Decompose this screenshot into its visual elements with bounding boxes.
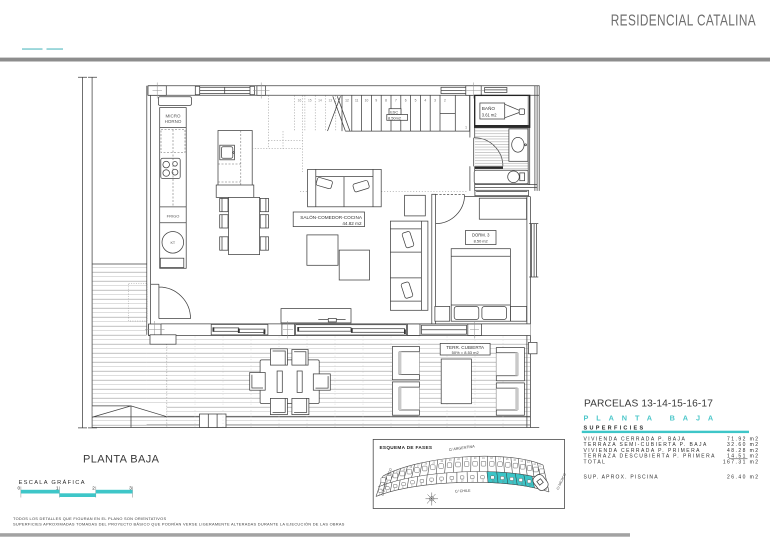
- svg-text:8.50 m2: 8.50 m2: [474, 239, 488, 244]
- svg-text:HORNO: HORNO: [165, 119, 182, 124]
- svg-text:6: 6: [405, 99, 407, 103]
- svg-text:BAÑO: BAÑO: [482, 105, 496, 111]
- svg-text:7: 7: [395, 99, 397, 103]
- svg-text:1: 1: [465, 126, 467, 130]
- svg-text:13: 13: [328, 99, 332, 103]
- svg-text:12: 12: [345, 99, 349, 103]
- svg-text:RESIDENCIAL CATALINA: RESIDENCIAL CATALINA: [611, 11, 756, 29]
- svg-text:3: 3: [129, 485, 132, 490]
- svg-text:SUPERFICIES APROXIMADAS TOMADA: SUPERFICIES APROXIMADAS TOMADAS DEL PROY…: [13, 522, 345, 527]
- svg-text:SALÓN-COMEDOR-COCINA: SALÓN-COMEDOR-COCINA: [300, 214, 363, 220]
- svg-text:15: 15: [308, 99, 312, 103]
- svg-text:MICRO: MICRO: [166, 113, 181, 118]
- svg-text:3: 3: [434, 99, 436, 103]
- svg-text:2: 2: [444, 99, 446, 103]
- svg-text:2: 2: [92, 485, 95, 490]
- svg-text:9: 9: [375, 99, 377, 103]
- svg-text:TOTAL: TOTAL: [584, 459, 607, 465]
- svg-text:16: 16: [298, 99, 302, 103]
- svg-text:FRIGO: FRIGO: [167, 213, 180, 218]
- svg-text:PLANTA BAJA: PLANTA BAJA: [83, 454, 160, 466]
- svg-text:SUPERFICIES: SUPERFICIES: [584, 425, 646, 431]
- svg-text:8: 8: [385, 99, 387, 103]
- svg-text:PARCELAS 13-14-15-16-17: PARCELAS 13-14-15-16-17: [584, 399, 713, 410]
- svg-text:PLANTA BAJA: PLANTA BAJA: [584, 414, 722, 423]
- svg-text:ESQUEMA DE FASES: ESQUEMA DE FASES: [380, 445, 433, 450]
- svg-text:10: 10: [365, 99, 369, 103]
- svg-text:ESCALA GRÁFICA: ESCALA GRÁFICA: [19, 479, 86, 486]
- svg-text:26.40 m2: 26.40 m2: [727, 475, 759, 481]
- svg-text:SUP. APROX. PISCINA: SUP. APROX. PISCINA: [584, 475, 659, 481]
- svg-text:3.61 m2: 3.61 m2: [482, 113, 498, 118]
- svg-text:167.31 m2: 167.31 m2: [723, 459, 760, 465]
- svg-text:4: 4: [424, 99, 426, 103]
- svg-text:50% = 8.53 m2: 50% = 8.53 m2: [452, 350, 480, 355]
- svg-text:14: 14: [318, 99, 322, 103]
- svg-text:C/ CHILE: C/ CHILE: [455, 489, 471, 494]
- svg-text:0: 0: [18, 485, 21, 490]
- svg-text:44.82 m2: 44.82 m2: [342, 221, 362, 226]
- svg-text:8.50m2: 8.50m2: [388, 115, 401, 120]
- svg-text:TODOS LOS DETALLES QUE FIGURAN: TODOS LOS DETALLES QUE FIGURAN EN EL PLA…: [13, 516, 166, 521]
- svg-text:DORM. 3: DORM. 3: [472, 233, 490, 238]
- svg-text:11: 11: [355, 99, 359, 103]
- svg-text:ESC: ESC: [390, 109, 398, 114]
- svg-text:KT: KT: [170, 241, 175, 245]
- svg-text:5: 5: [415, 99, 417, 103]
- svg-text:1: 1: [56, 485, 59, 490]
